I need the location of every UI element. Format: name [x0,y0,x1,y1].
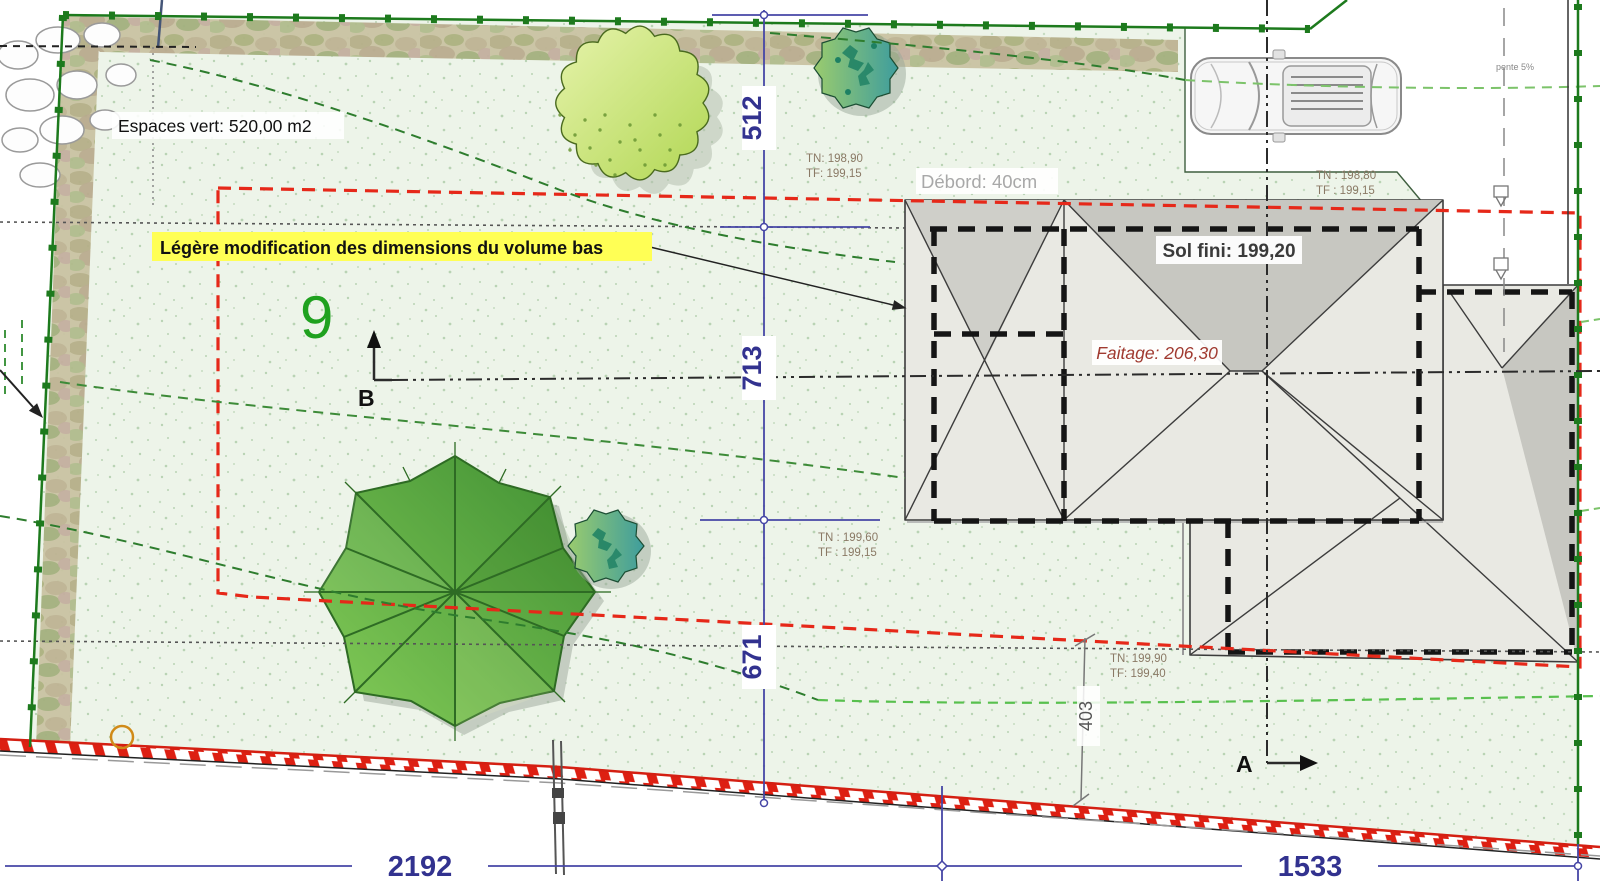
modification-note-text: Légère modification des dimensions du vo… [160,238,603,258]
dimension-512: 512 [737,95,767,140]
dimension-713: 713 [737,345,767,390]
spot-level-1-tn: TN: 198,90 [806,153,863,165]
dimension-671: 671 [737,634,767,679]
site-plan: Espaces vert: 520,00 m2 9 512 713 671 40… [0,0,1600,881]
ridge-label: Faitage: 206,30 [1096,343,1218,363]
green-area-label: Espaces vert: 520,00 m2 [118,116,312,136]
section-a-label: A [1236,751,1253,777]
dimension-403: 403 [1076,701,1096,731]
spot-level-1-tf: TF: 199,15 [806,168,862,180]
slope-label: pente 5% [1496,62,1534,72]
spot-level-3-tf: TF : 199,15 [818,547,877,559]
finished-floor-label: Sol fini: 199,20 [1162,241,1295,262]
overhang-label: Débord: 40cm [921,171,1037,192]
parcel-number: 9 [300,284,333,351]
spot-level-4-tn: TN: 199,90 [1110,653,1167,665]
dimension-2192: 2192 [388,851,453,881]
spot-level-3-tn: TN : 199,60 [818,532,878,544]
site-plan-drawing: Espaces vert: 520,00 m2 9 512 713 671 40… [0,0,1600,881]
spot-level-2-tn: TN : 198,80 [1316,170,1376,182]
car [1191,50,1401,142]
spot-level-2-tf: TF : 199,15 [1316,185,1375,197]
dimension-1533: 1533 [1278,851,1343,881]
section-b-label: B [358,385,375,411]
spot-level-4-tf: TF: 199,40 [1110,668,1166,680]
